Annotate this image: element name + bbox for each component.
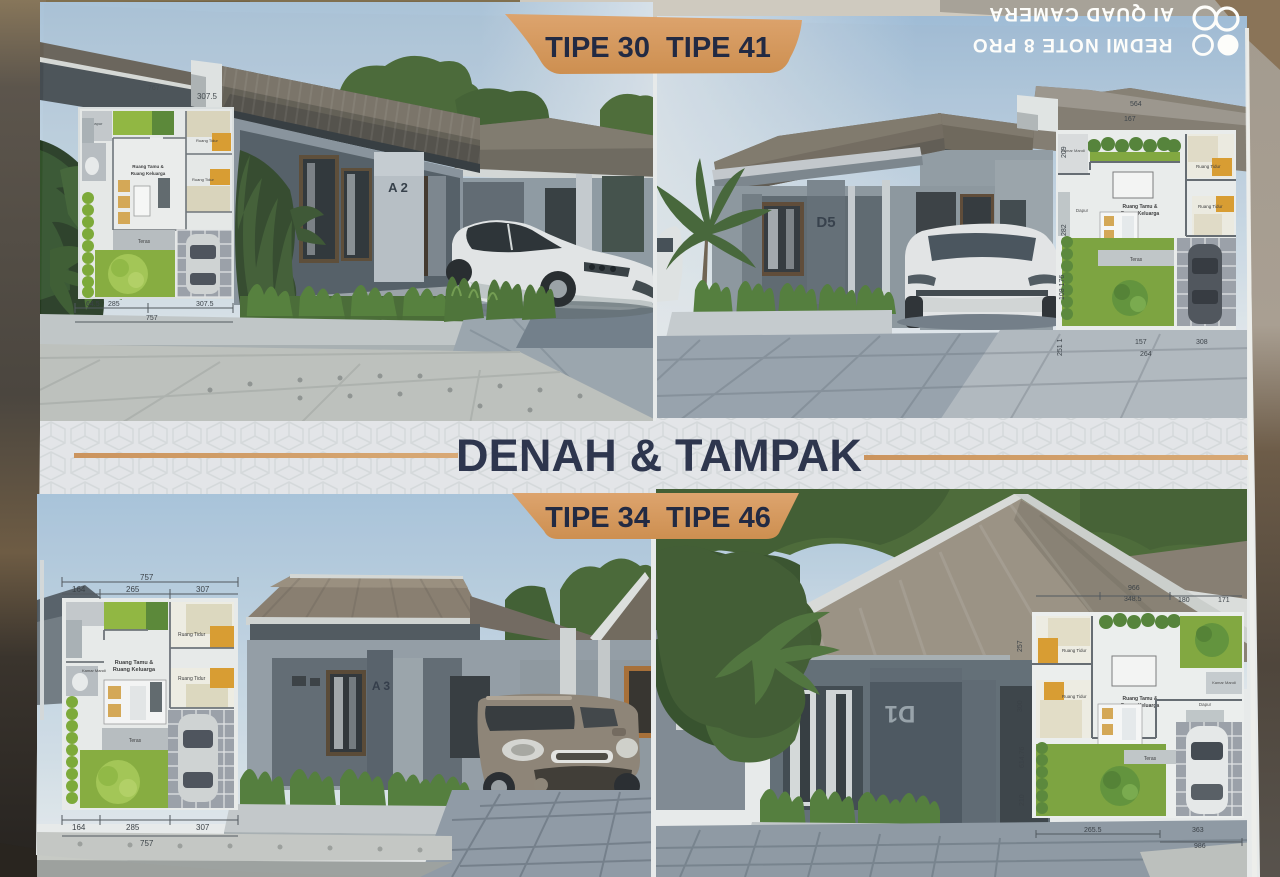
- svg-text:TIPE 30 TIPE 41: TIPE 30 TIPE 41: [545, 32, 771, 64]
- svg-text:TIPE 34 TIPE 46: TIPE 34 TIPE 46: [545, 502, 771, 534]
- svg-text:REDMI NOTE 8 PRO: REDMI NOTE 8 PRO: [972, 34, 1173, 55]
- svg-text:AI QUAD CAMERA: AI QUAD CAMERA: [988, 3, 1174, 24]
